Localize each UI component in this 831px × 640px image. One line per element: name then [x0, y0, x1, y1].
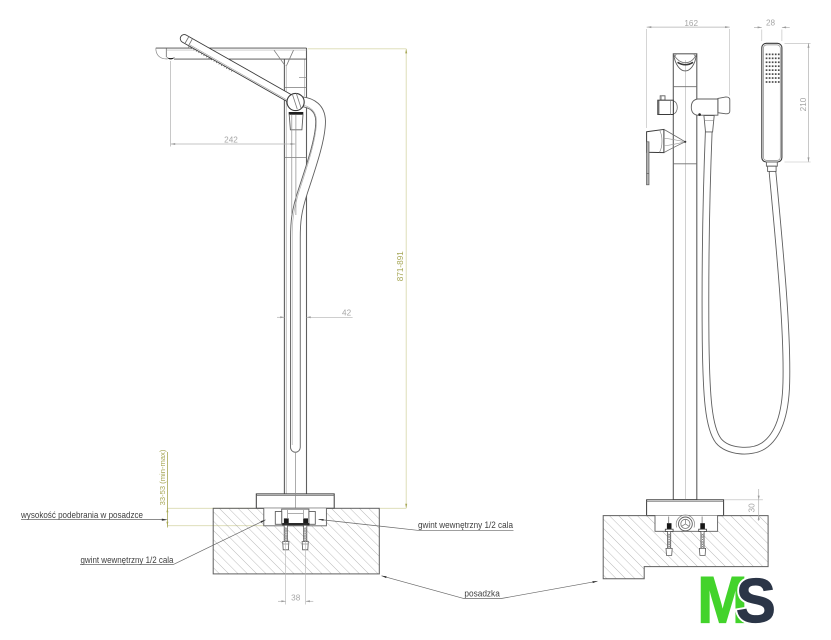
svg-text:162: 162	[684, 19, 698, 28]
svg-text:38: 38	[291, 593, 301, 602]
svg-text:gwint wewnętrzny 1/2 cala: gwint wewnętrzny 1/2 cala	[418, 520, 513, 530]
svg-text:42: 42	[342, 309, 352, 318]
svg-text:210: 210	[799, 97, 808, 111]
svg-text:33-53 (min-max): 33-53 (min-max)	[158, 449, 167, 505]
svg-text:28: 28	[766, 18, 776, 27]
svg-text:posadzka: posadzka	[464, 589, 499, 599]
svg-text:S: S	[736, 566, 776, 635]
svg-text:871-891: 871-891	[396, 251, 405, 281]
svg-text:gwint wewnętrzny 1/2 cala: gwint wewnętrzny 1/2 cala	[81, 555, 174, 565]
svg-text:242: 242	[224, 136, 238, 145]
svg-text:wysokość podebrania w posadzce: wysokość podebrania w posadzce	[20, 510, 143, 520]
svg-text:30: 30	[748, 503, 757, 513]
